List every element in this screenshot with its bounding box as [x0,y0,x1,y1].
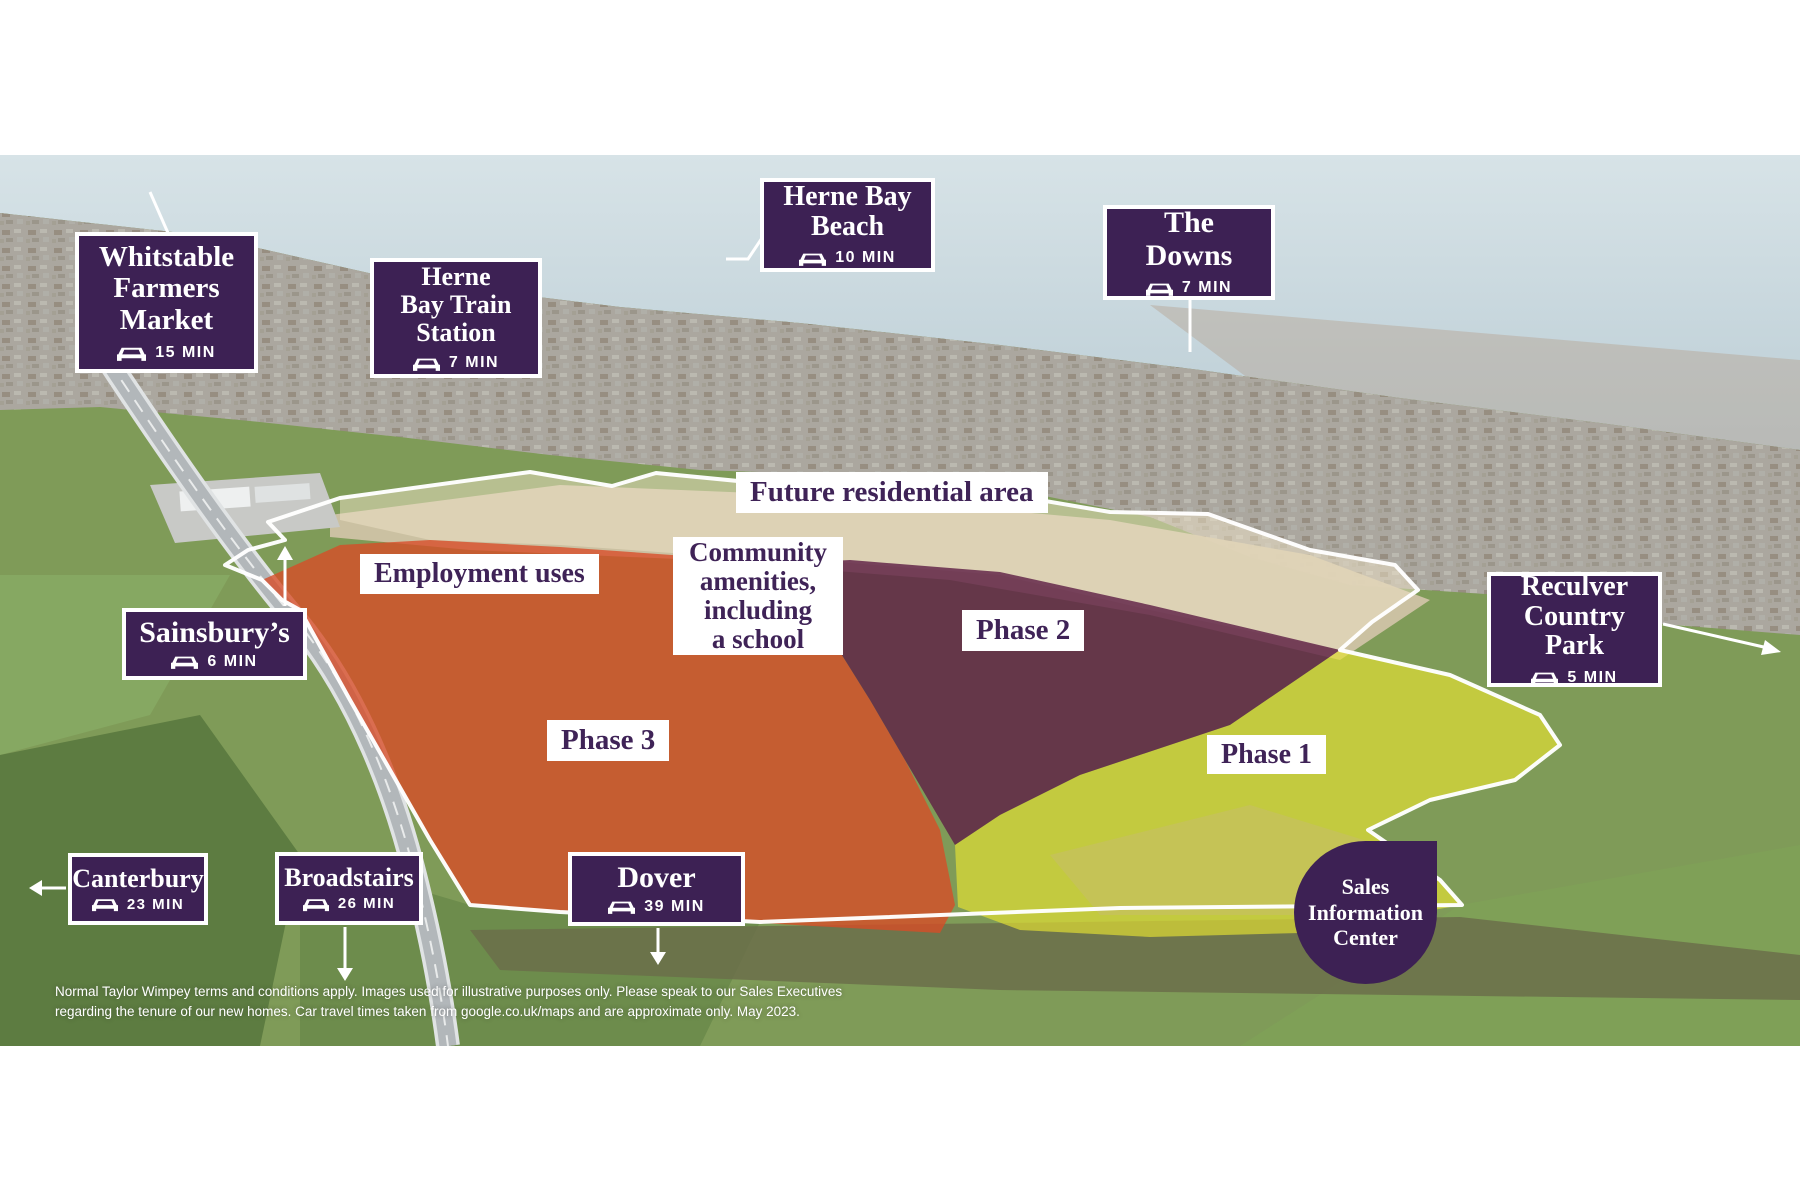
area-label-phase-2: Phase 2 [962,610,1084,651]
drive-time: 23 MIN [92,895,184,913]
drive-time: 15 MIN [117,343,216,363]
drive-time-text: 26 MIN [338,895,395,912]
map-label-broadstairs: Broadstairs 26 MIN [275,852,423,925]
drive-time: 6 MIN [171,652,257,671]
drive-time-text: 10 MIN [835,249,896,267]
drive-time-text: 39 MIN [644,898,705,916]
area-label-phase-1: Phase 1 [1207,735,1326,774]
destination-name: Herne Bay Train Station [400,263,511,346]
destination-name: Sainsbury’s [139,617,290,649]
car-icon [171,652,198,671]
destination-name: Whitstable Farmers Market [99,242,234,335]
drive-time-text: 7 MIN [1182,279,1232,297]
car-icon [799,249,826,268]
drive-time-text: 5 MIN [1567,669,1617,687]
map-label-the-downs: The Downs 7 MIN [1103,205,1275,300]
car-icon [92,895,118,913]
drive-time: 5 MIN [1531,668,1617,687]
area-label-phase-3: Phase 3 [547,720,669,761]
destination-name: The Downs [1146,207,1233,271]
destination-name: Broadstairs [284,864,414,892]
car-icon [413,354,440,373]
area-label-future-residential: Future residential area [736,472,1048,513]
drive-time: 7 MIN [1146,279,1232,298]
map-label-herne-bay-train-station: Herne Bay Train Station 7 MIN [370,258,542,378]
destination-name: Dover [617,862,695,894]
drive-time-text: 7 MIN [449,354,499,372]
sales-information-center-pin: Sales Information Center [1294,841,1437,984]
map-label-reculver-country-park: Reculver Country Park 5 MIN [1487,572,1662,687]
car-icon [303,895,329,913]
drive-time-text: 6 MIN [207,653,257,671]
car-icon [1146,279,1173,298]
drive-time-text: 23 MIN [127,896,184,913]
destination-name: Canterbury [72,865,203,893]
drive-time-text: 15 MIN [155,344,216,362]
destination-name: Herne Bay Beach [783,182,911,242]
disclaimer-text: Normal Taylor Wimpey terms and condition… [55,982,1305,1022]
drive-time: 7 MIN [413,354,499,373]
drive-time: 39 MIN [608,897,705,916]
drive-time: 10 MIN [799,249,896,268]
area-label-employment-uses: Employment uses [360,554,599,594]
map-label-sainsburys: Sainsbury’s 6 MIN [122,608,307,680]
car-icon [117,343,146,363]
brochure-page: Whitstable Farmers Market 15 MIN Herne B… [0,0,1800,1200]
map-label-whitstable-farmers-market: Whitstable Farmers Market 15 MIN [75,232,258,373]
car-icon [1531,668,1558,687]
area-label-community-amenities: Community amenities, including a school [673,537,843,655]
car-icon [608,897,635,916]
map-label-canterbury: Canterbury 23 MIN [68,853,208,925]
drive-time: 26 MIN [303,895,395,913]
map-label-dover: Dover 39 MIN [568,852,745,926]
map-label-herne-bay-beach: Herne Bay Beach 10 MIN [760,178,935,272]
destination-name: Reculver Country Park [1521,572,1628,662]
